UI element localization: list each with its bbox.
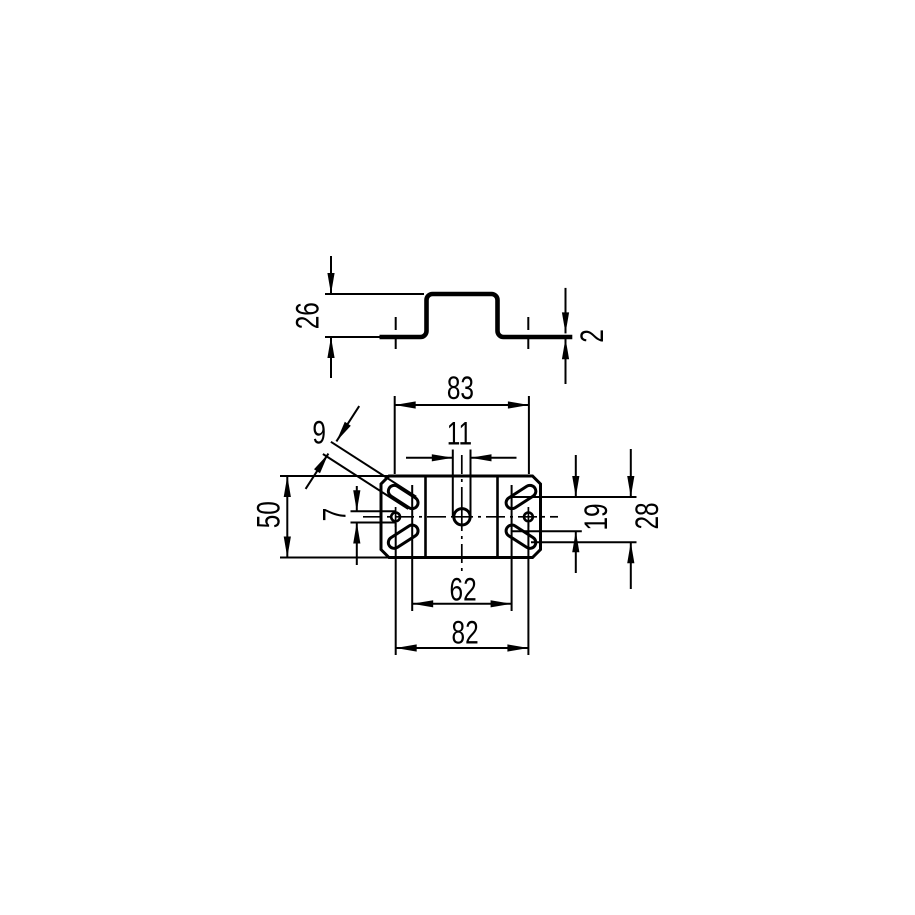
svg-text:62: 62 (450, 572, 477, 608)
svg-text:19: 19 (578, 503, 614, 530)
svg-text:50: 50 (251, 501, 287, 528)
svg-text:7: 7 (317, 508, 353, 522)
svg-text:2: 2 (575, 329, 611, 343)
svg-text:11: 11 (447, 416, 472, 452)
svg-text:28: 28 (629, 502, 665, 529)
svg-text:26: 26 (290, 302, 326, 329)
svg-text:9: 9 (312, 415, 326, 451)
svg-text:83: 83 (447, 371, 474, 407)
svg-text:82: 82 (452, 615, 479, 651)
